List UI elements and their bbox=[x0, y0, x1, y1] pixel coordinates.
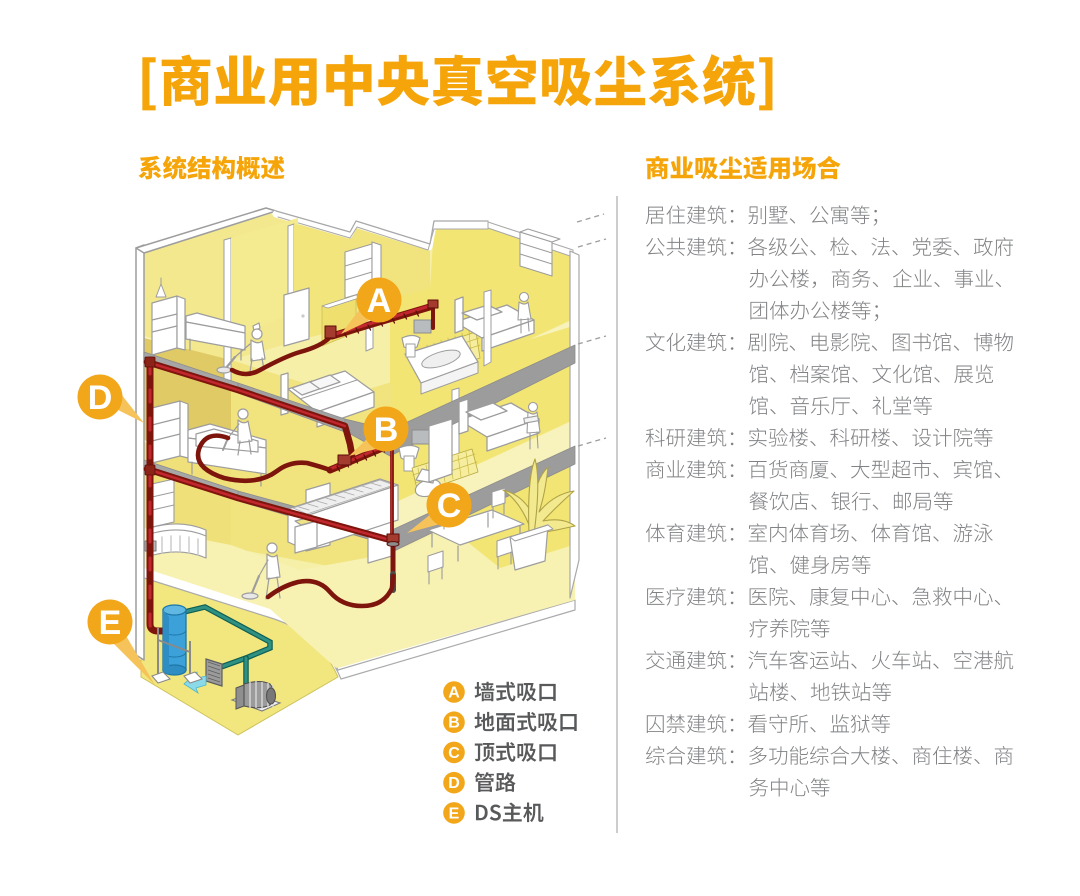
svg-text:A: A bbox=[448, 685, 460, 702]
svg-text:E: E bbox=[449, 805, 460, 822]
svg-text:D: D bbox=[448, 775, 460, 792]
svg-text:B: B bbox=[448, 715, 460, 732]
svg-text:B: B bbox=[374, 411, 399, 449]
svg-text:C: C bbox=[437, 487, 462, 525]
svg-text:A: A bbox=[367, 282, 392, 320]
svg-text:D: D bbox=[88, 379, 113, 417]
svg-text:E: E bbox=[99, 604, 122, 642]
svg-text:C: C bbox=[448, 745, 460, 762]
